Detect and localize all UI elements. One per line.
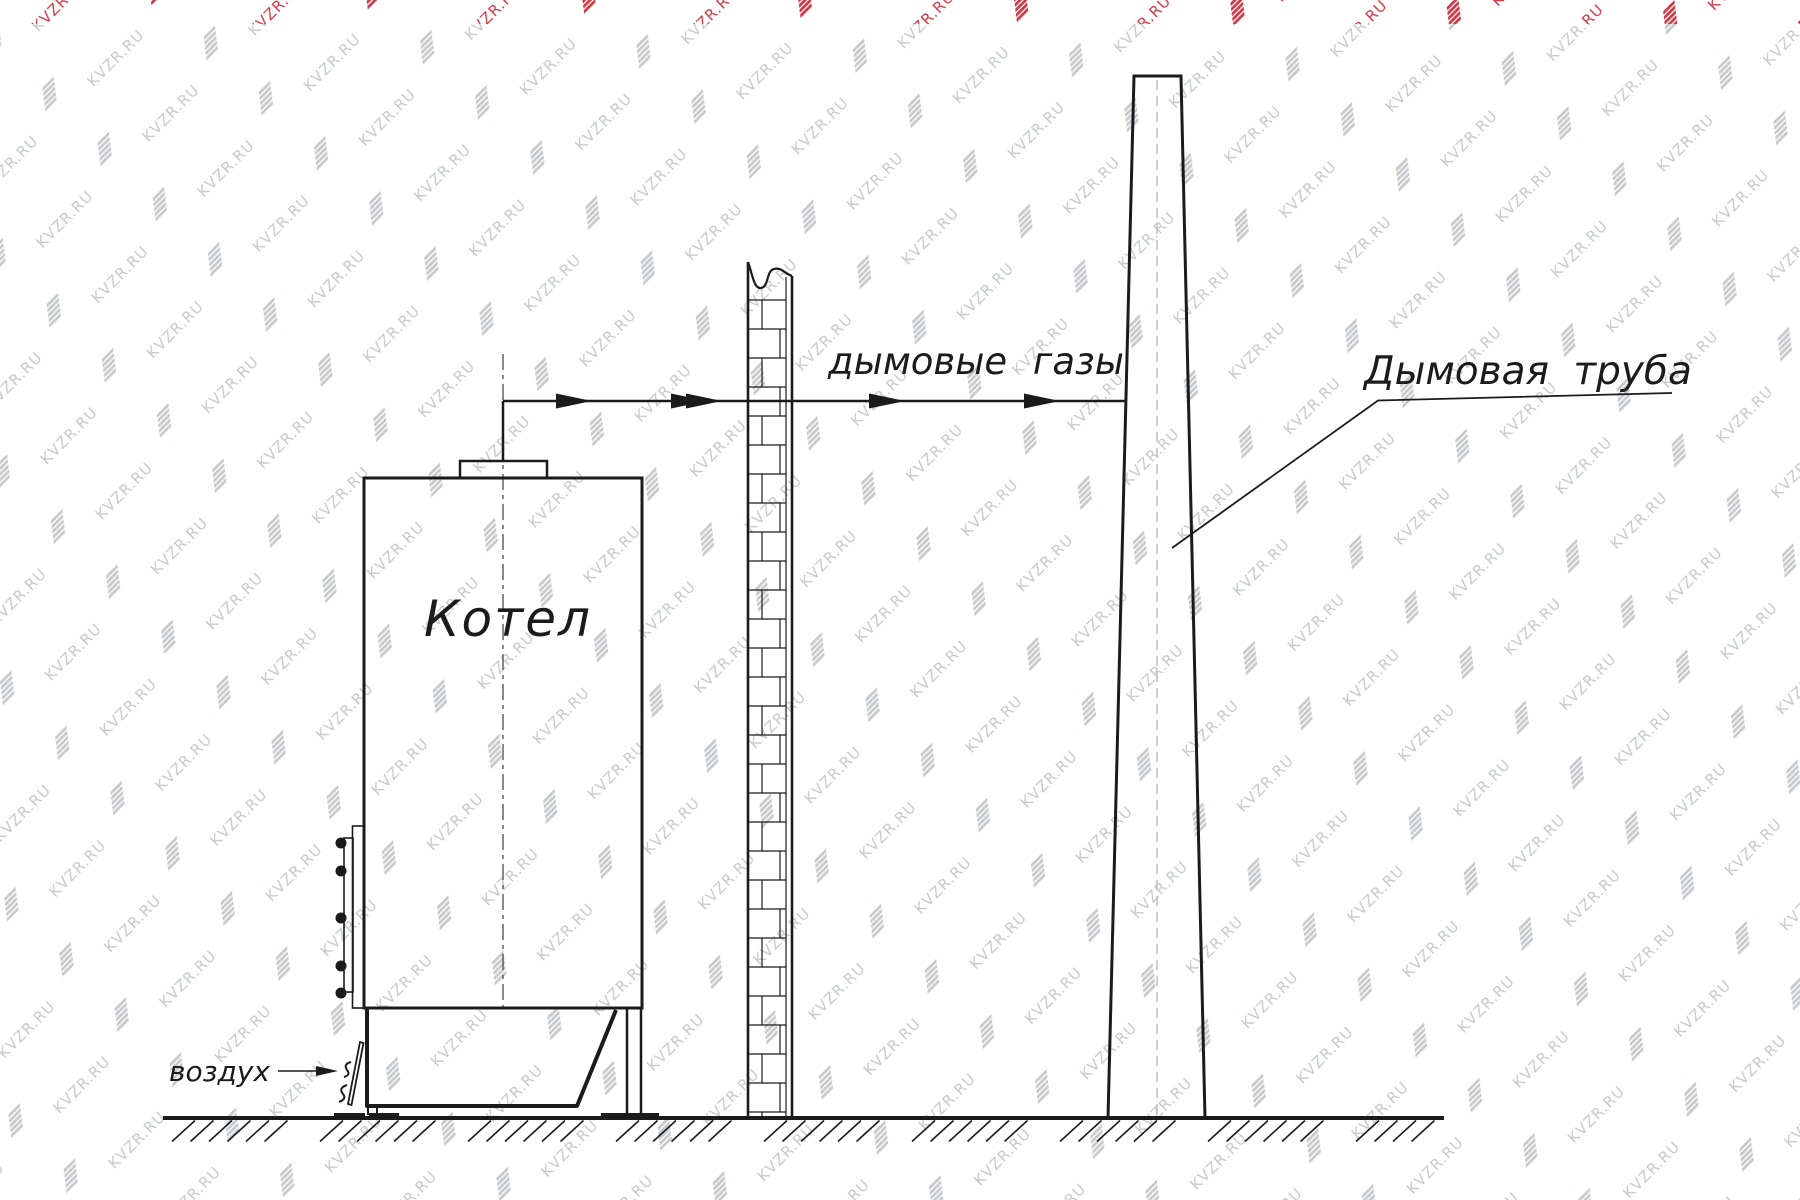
foot-pad [334,1113,365,1119]
boiler-door-knob [336,838,347,849]
boiler-door-knob [336,866,347,877]
boiler-label: Котел [424,590,592,648]
boiler-door-knob [336,961,347,972]
chimney-label: Дымовая труба [1362,349,1692,394]
foot-pad [369,1113,399,1119]
air-label: воздух [169,1055,270,1088]
boiler-door-knob [336,913,347,924]
foot-pad [601,1113,659,1119]
boiler-door-knob [336,988,347,999]
boiler-chimney-diagram: KVZR.RU KVZR.RU [0,0,1800,1200]
watermark-background [0,24,1800,1200]
flue-gases-label: дымовые газы [827,340,1124,383]
watermark-top-strip [0,0,1800,24]
diagram-canvas: KVZR.RU KVZR.RU [0,0,1800,1200]
